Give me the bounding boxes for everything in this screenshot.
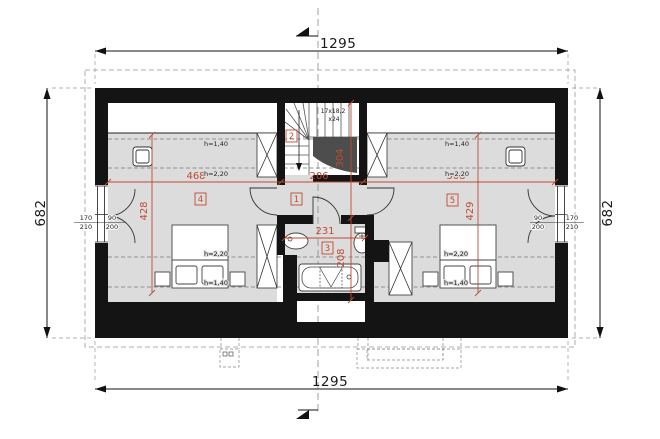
wall-stair-left [277,103,285,185]
section-arrow-top [296,27,309,36]
room-number-hall: 1 [294,195,299,205]
wall-block [374,240,389,262]
wall-bath-right [365,215,374,338]
height-label: h=1,40 [204,140,228,148]
bathtub [299,264,361,291]
dim-bedroom-left-depth: 428 [139,201,150,220]
wall-bottom-left [95,302,283,338]
opening-size-door-h-left: 200 [106,223,118,231]
dim-bottom-label: 1295 [312,374,348,390]
dim-hall-width: 206 [309,171,328,182]
dim-left-label: 682 [33,199,49,226]
chimney-dot [229,352,233,356]
dim-bedroom-right-depth: 429 [465,201,476,220]
wall-top [95,88,568,103]
room-number-bathroom: 3 [325,244,330,254]
height-label: h=2,20 [445,170,469,178]
height-label: h=1,40 [204,279,228,287]
floor-plan-svg: 1295 1295 682 682 468 206 508 428 429 30… [0,0,660,439]
opening-size-window-w-left: 170 [80,214,92,222]
dim-stair-depth: 304 [335,148,346,167]
height-label: h=2,20 [204,250,228,258]
opening-size-door-w-right: 90 [534,214,542,222]
wall-right-upper [555,103,568,185]
dim-right-label: 682 [600,199,616,226]
chimney-dot [223,352,227,356]
wall-left-upper [95,103,108,185]
height-label: h=1,40 [445,140,469,148]
stair-note-line2: x24 [328,116,339,123]
wall-hall-bath-left [277,215,313,224]
roof-window-left [133,147,152,166]
wall-bottom-middle [297,322,374,338]
projection-outlines [220,338,461,368]
room-number-bedroom-left: 4 [198,195,203,205]
opening-size-window-h-left: 210 [80,223,92,231]
wall-bottom-right [374,302,568,338]
room-number-staircase: 2 [289,132,294,142]
dim-bedroom-left-width: 468 [186,171,205,182]
height-label: h=2,20 [444,250,468,258]
opening-size-door-w-left: 90 [108,214,116,222]
section-arrow-bottom [296,410,309,419]
height-label: h=1,40 [444,279,468,287]
height-label: h=2,20 [204,170,228,178]
wall-bath-niche-left [283,255,297,338]
opening-size-door-h-right: 200 [532,223,544,231]
floor-plan-drawing: 1295 1295 682 682 468 206 508 428 429 30… [0,0,660,439]
wall-stair-right [359,103,367,185]
stair-note-line1: 17x18,2 [321,108,346,115]
roof-window-right [506,147,525,166]
dim-bath-width: 231 [315,226,334,237]
room-number-bedroom-right: 5 [450,196,455,206]
nightstand [423,272,438,286]
dim-bath-depth: 208 [336,248,347,267]
opening-size-window-w-right: 170 [566,214,578,222]
nightstand [155,272,170,286]
window-left [95,185,108,243]
nightstand [230,272,245,286]
nightstand [498,272,513,286]
dim-top-label: 1295 [320,36,356,52]
wall-bath-niche-bottom [297,293,365,301]
opening-size-window-h-right: 210 [566,223,578,231]
wall-hall-bath-right [341,215,374,224]
